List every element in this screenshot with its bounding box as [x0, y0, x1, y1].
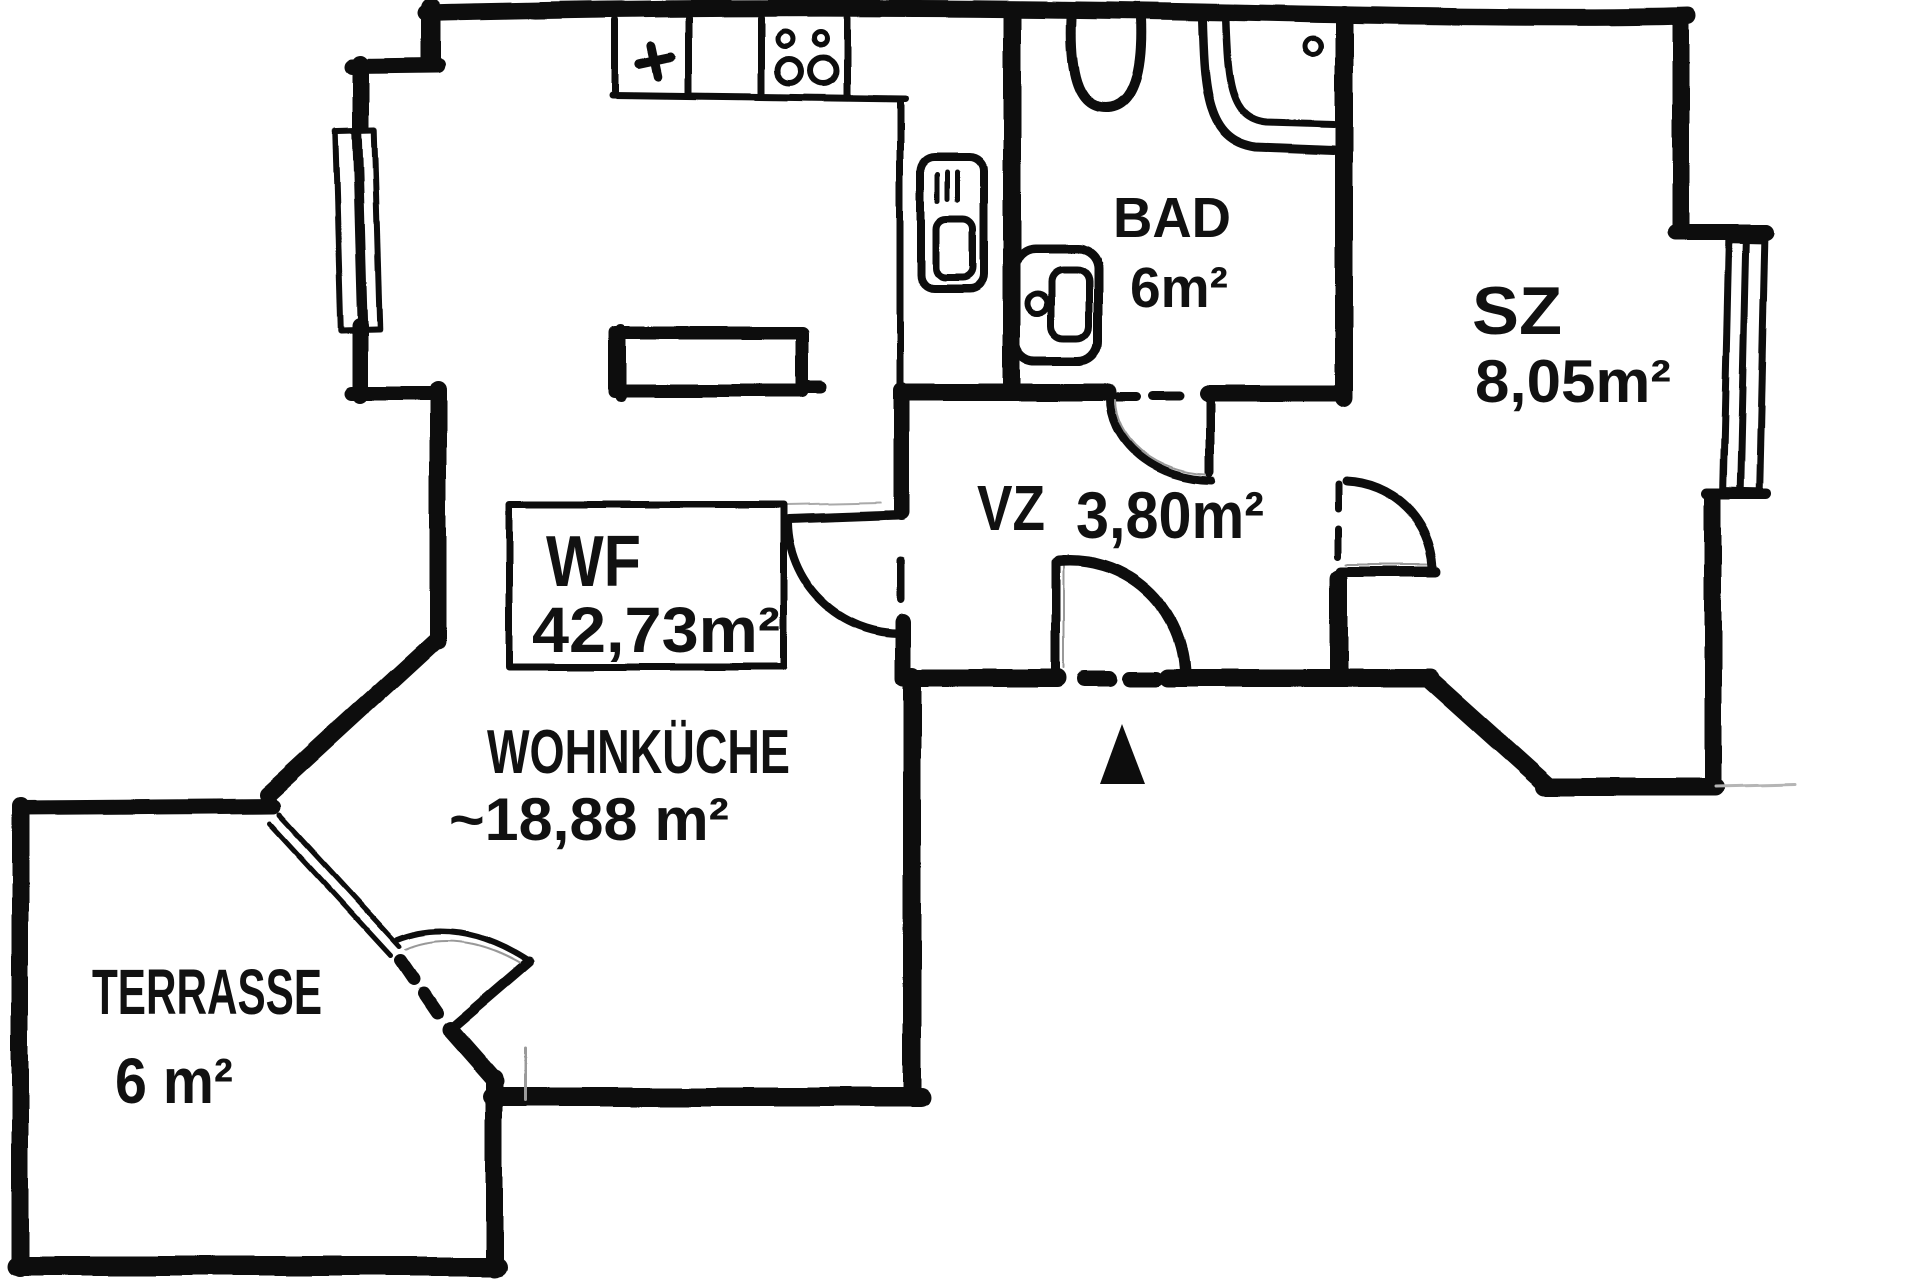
svg-text:6 m²: 6 m² — [115, 1045, 233, 1117]
svg-text:BAD: BAD — [1113, 186, 1231, 250]
svg-text:3,80m²: 3,80m² — [1076, 478, 1264, 552]
svg-text:TERRASSE: TERRASSE — [92, 956, 322, 1028]
svg-text:WOHNKÜCHE: WOHNKÜCHE — [487, 718, 790, 787]
svg-text:SZ: SZ — [1472, 273, 1562, 349]
svg-text:WF: WF — [546, 522, 641, 602]
svg-text:6m²: 6m² — [1130, 256, 1228, 320]
svg-text:~18,88 m²: ~18,88 m² — [449, 786, 729, 853]
svg-text:42,73m²: 42,73m² — [532, 594, 780, 666]
svg-text:VZ: VZ — [977, 472, 1045, 544]
svg-text:8,05m²: 8,05m² — [1475, 348, 1671, 415]
